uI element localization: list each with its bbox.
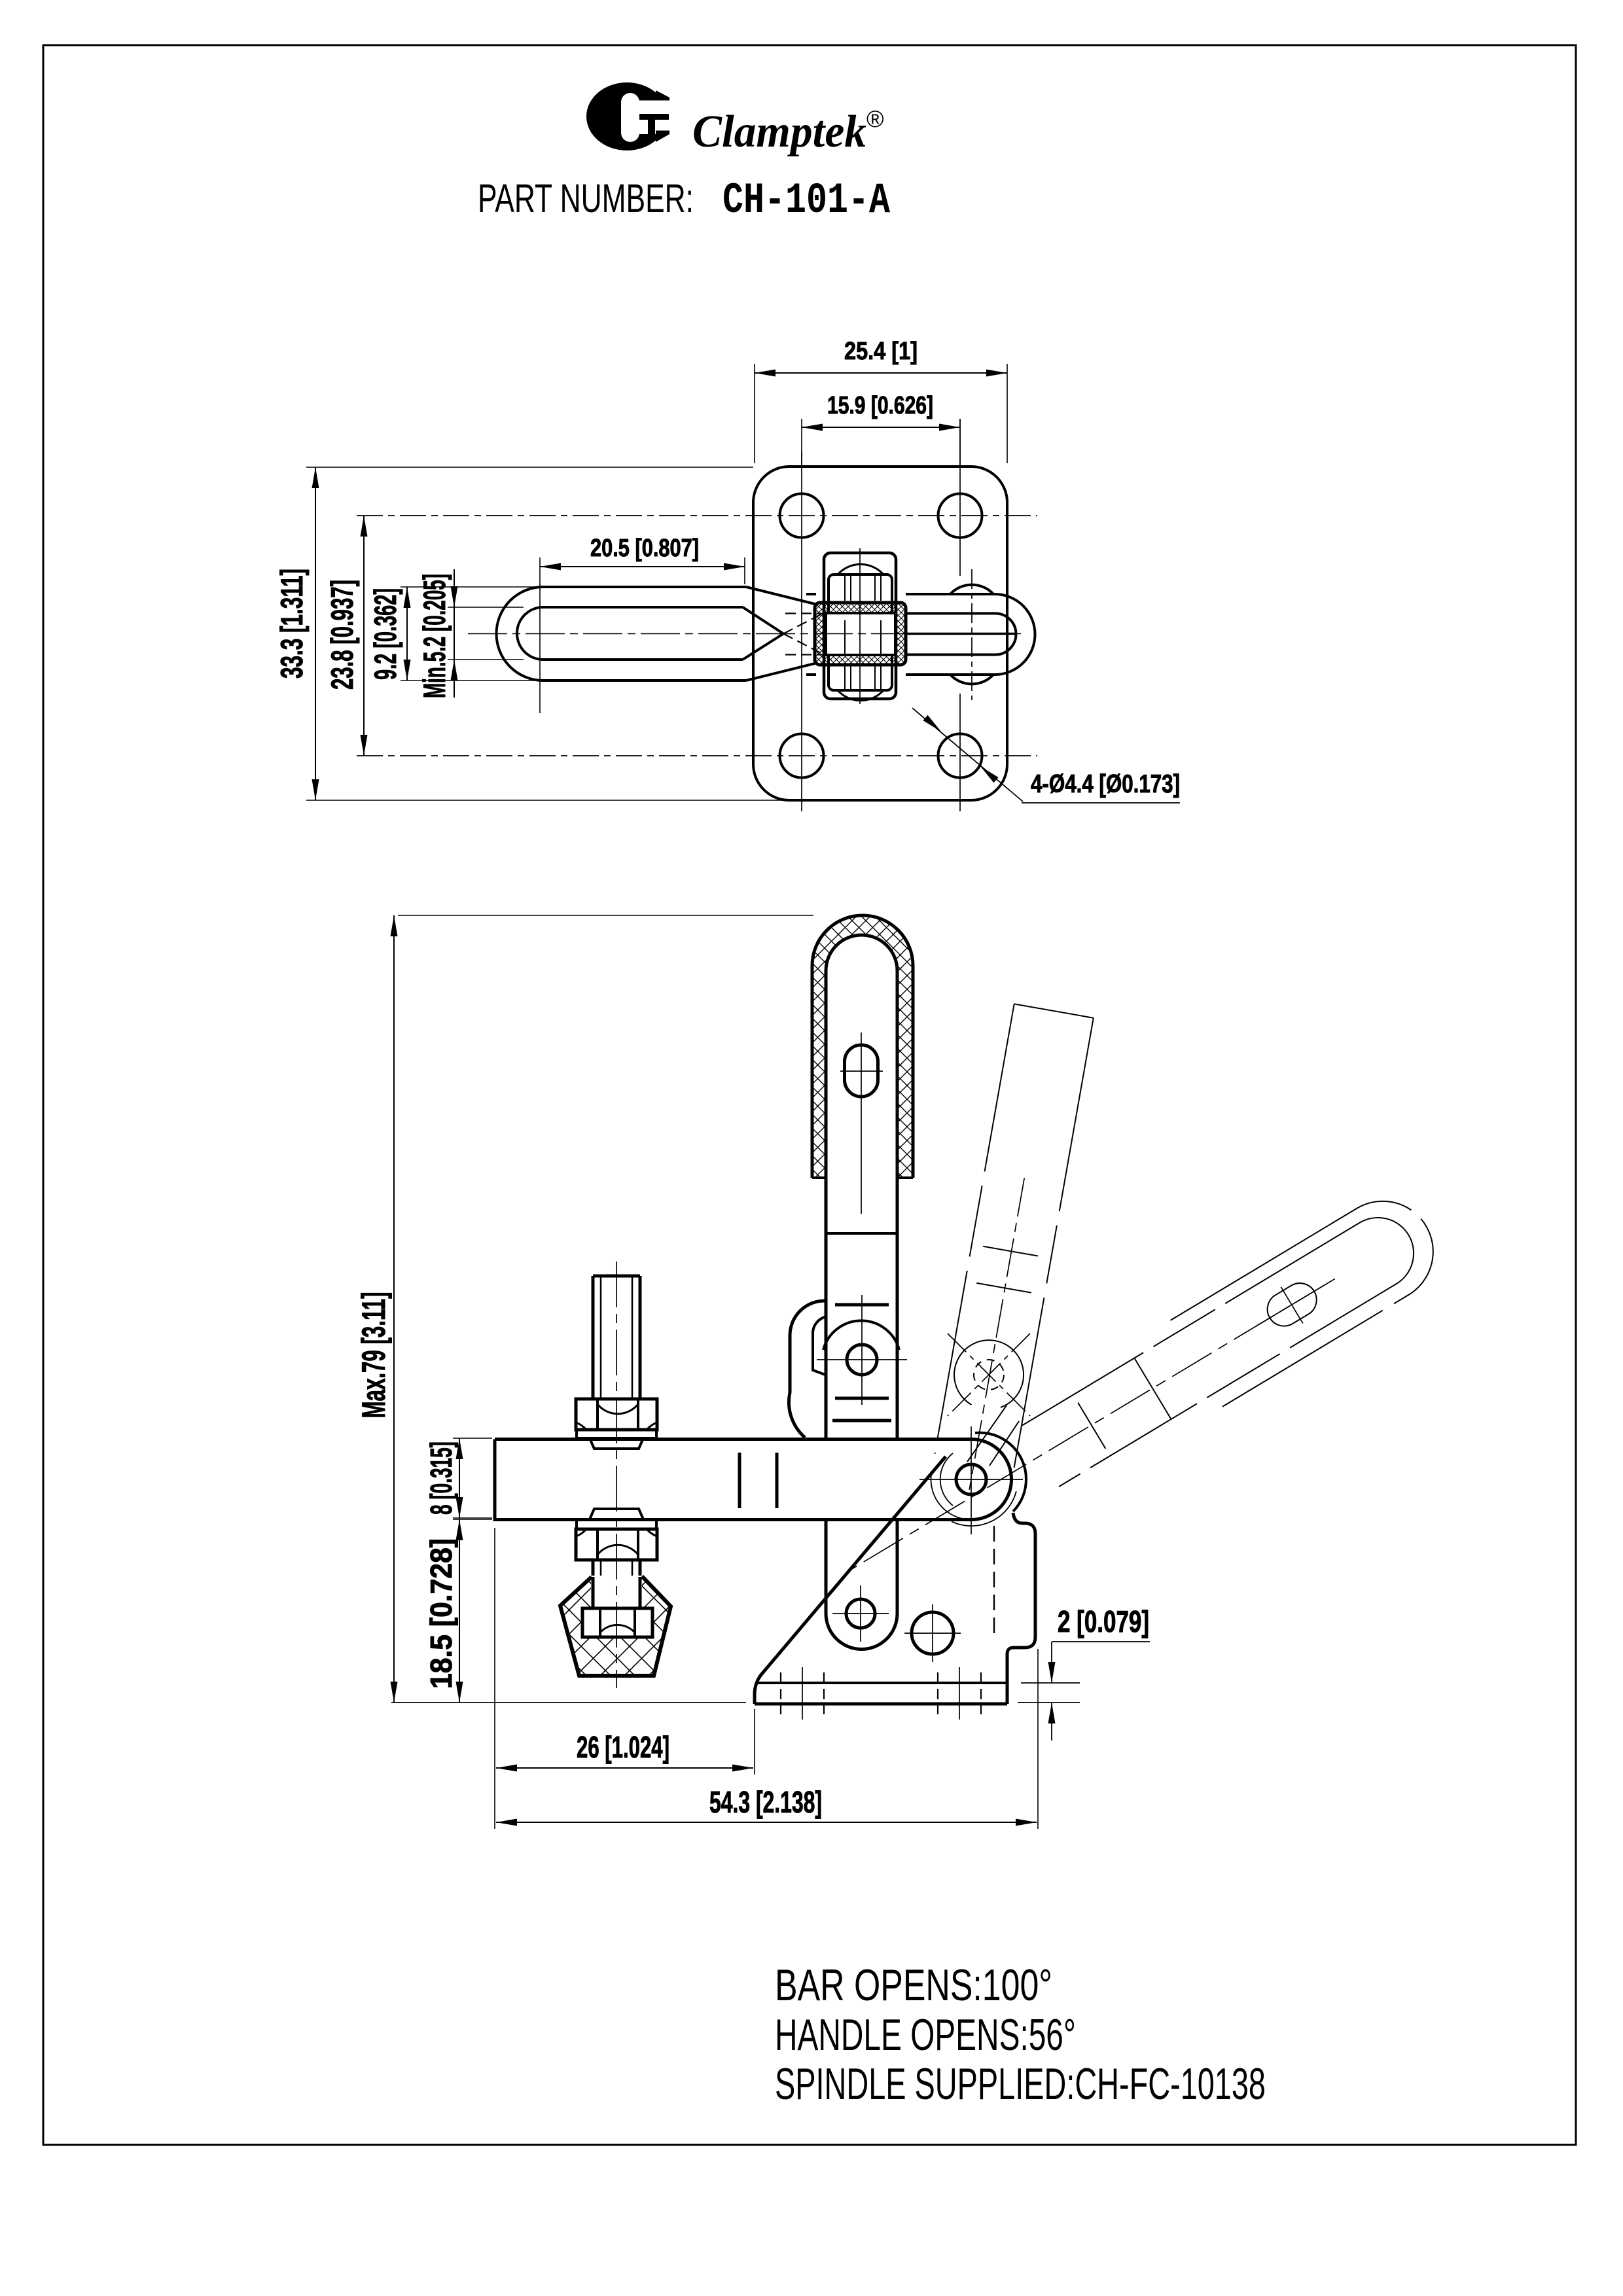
svg-text:®: ® xyxy=(866,105,884,132)
svg-text:25.4 [1]: 25.4 [1] xyxy=(844,338,918,365)
svg-text:26 [1.024]: 26 [1.024] xyxy=(577,1730,669,1764)
svg-text:SPINDLE SUPPLIED:CH-FC-10138: SPINDLE SUPPLIED:CH-FC-10138 xyxy=(775,2059,1266,2109)
svg-text:18.5 [0.728]: 18.5 [0.728] xyxy=(424,1538,458,1689)
svg-text:15.9 [0.626]: 15.9 [0.626] xyxy=(827,392,933,419)
svg-text:2 [0.079]: 2 [0.079] xyxy=(1058,1604,1149,1638)
svg-text:PART NUMBER:: PART NUMBER: xyxy=(478,176,694,221)
svg-text:CH-101-A: CH-101-A xyxy=(722,176,890,225)
svg-text:8 [0.315]: 8 [0.315] xyxy=(424,1441,458,1515)
svg-text:4-Ø4.4 [Ø0.173]: 4-Ø4.4 [Ø0.173] xyxy=(1031,770,1180,798)
svg-text:9.2 [0.362]: 9.2 [0.362] xyxy=(368,588,402,680)
svg-text:23.8 [0.937]: 23.8 [0.937] xyxy=(325,580,359,690)
svg-text:54.3 [2.138]: 54.3 [2.138] xyxy=(709,1785,822,1819)
svg-text:Min.5.2 [0.205]: Min.5.2 [0.205] xyxy=(417,574,452,698)
svg-text:Clamptek: Clamptek xyxy=(692,107,866,157)
svg-text:HANDLE OPENS:56°: HANDLE OPENS:56° xyxy=(775,2010,1076,2060)
svg-text:20.5 [0.807]: 20.5 [0.807] xyxy=(590,535,699,562)
svg-text:Max.79 [3.11]: Max.79 [3.11] xyxy=(355,1292,392,1419)
svg-text:33.3 [1.311]: 33.3 [1.311] xyxy=(274,569,309,679)
svg-text:BAR OPENS:100°: BAR OPENS:100° xyxy=(775,1960,1052,2010)
